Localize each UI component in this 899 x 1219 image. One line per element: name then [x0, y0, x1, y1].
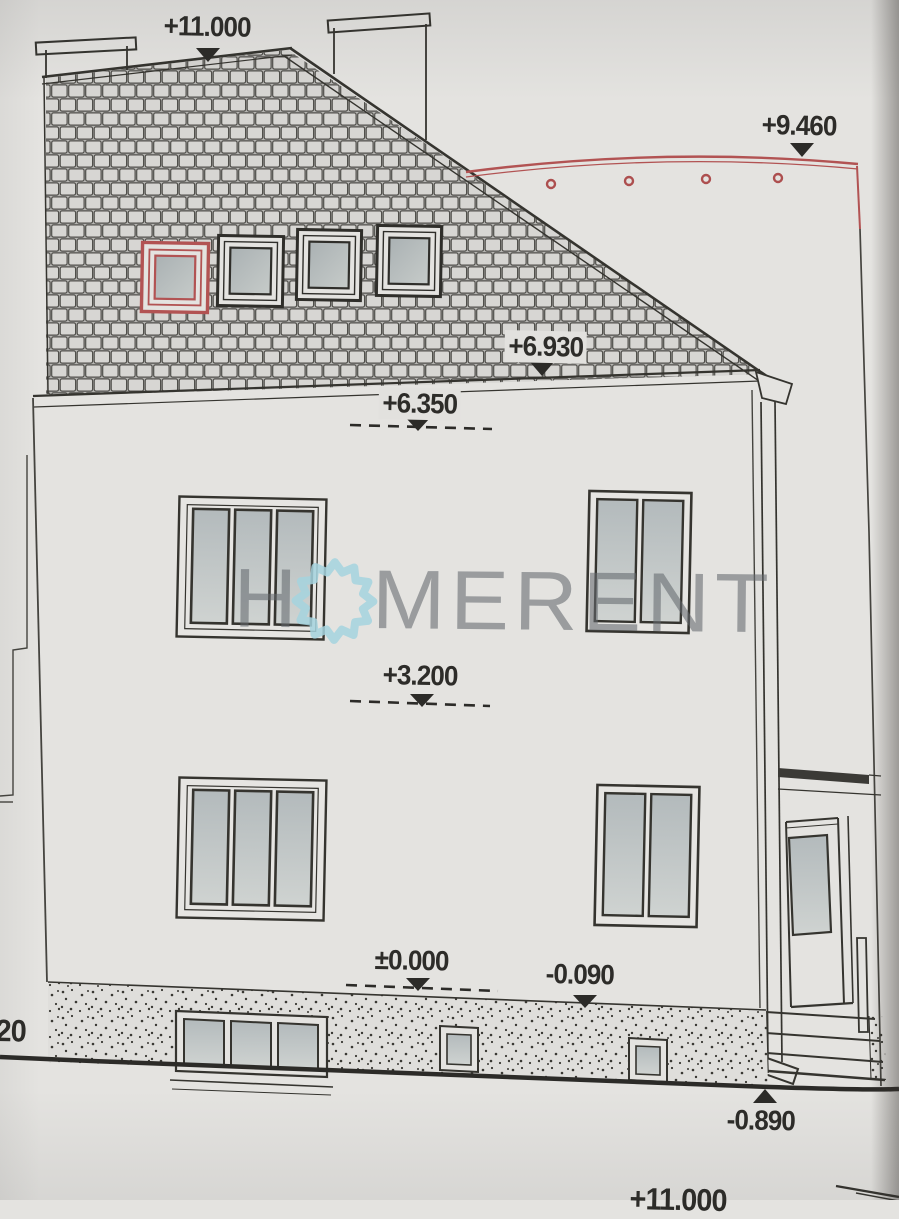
dormer-window-1 — [217, 235, 283, 306]
level-label-ground-floor: ±0.000 — [374, 944, 449, 978]
roof-tiled-surface — [46, 50, 764, 396]
fixing-dots-red — [547, 174, 782, 188]
level-label-terrain: -0.890 — [726, 1104, 795, 1137]
floor-level-dashed-lines — [346, 425, 498, 991]
basement-window-wide — [170, 1011, 333, 1095]
dimension-label-partial: 20 — [0, 1013, 26, 1050]
window-2pane-lower — [595, 785, 700, 927]
window-2pane-upper — [587, 491, 692, 633]
marker-right-roof — [790, 143, 814, 157]
level-label-ridge: +11.000 — [163, 10, 251, 44]
elevation-drawing-photo: +11.000 +9.460 +6.930 +6.350 +3.200 ±0.0… — [0, 0, 899, 1200]
window-3pane-lower — [177, 777, 327, 920]
basement-window-small-1 — [440, 1026, 478, 1072]
level-label-next-sheet: +11.000 — [629, 1181, 727, 1219]
level-label-eaves: +6.930 — [504, 330, 587, 364]
entrance-door — [786, 816, 853, 1007]
dormer-window-2 — [296, 229, 361, 300]
level-label-second-floor: +3.200 — [382, 659, 457, 693]
next-sheet-fragment — [836, 1186, 899, 1200]
window-3pane-upper — [177, 496, 327, 639]
gutter-downspout — [756, 372, 798, 1084]
door-canopy — [778, 768, 881, 795]
dormer-window-red — [141, 242, 208, 312]
building-elevation-drawing — [0, 0, 899, 1200]
dormer-window-3 — [376, 225, 441, 296]
neighbor-building-profile — [0, 455, 27, 802]
level-label-attic-floor: +6.350 — [378, 387, 461, 421]
basement-window-small-2 — [629, 1038, 667, 1082]
level-label-plinth-top: -0.090 — [545, 958, 614, 991]
door-glass — [789, 835, 831, 935]
level-label-right-roof: +9.460 — [761, 109, 836, 143]
marker-terrain — [753, 1089, 777, 1103]
